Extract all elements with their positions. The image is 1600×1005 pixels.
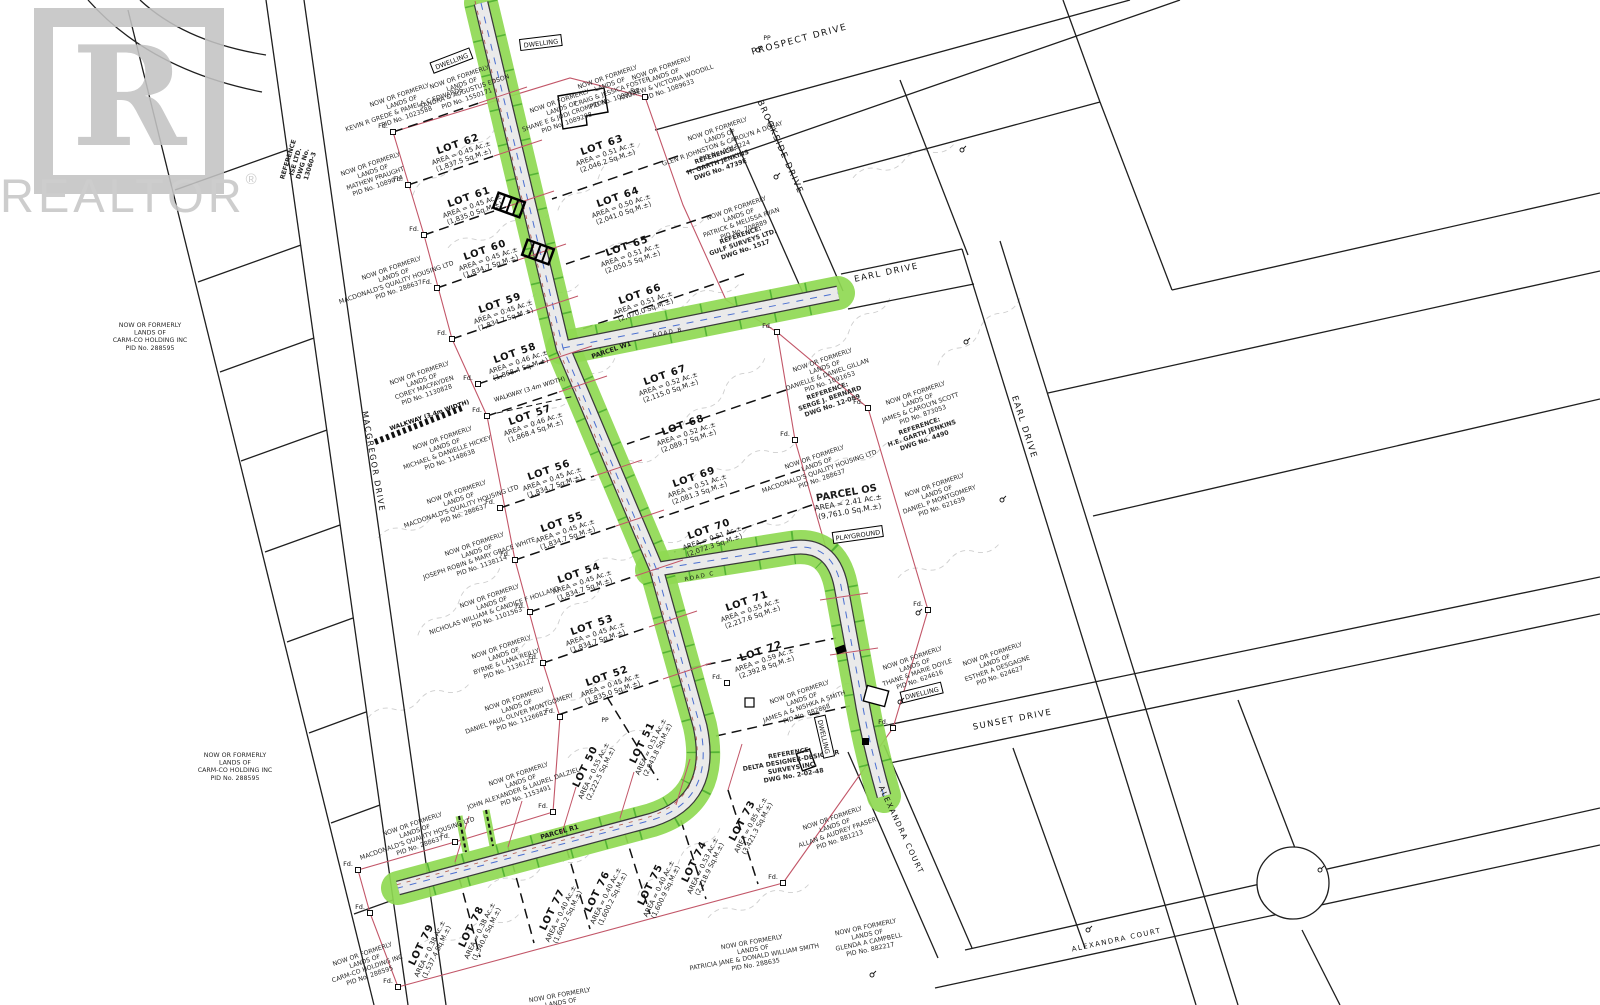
parcel-line [1013,748,1085,948]
svg-text:Fd.: Fd. [500,550,510,558]
svg-text:LANDS OF: LANDS OF [219,760,251,767]
lot-label-lot-52: LOT 52AREA = 0.45 Ac.±(1,835.0 Sq.M.±) [576,661,643,706]
svg-text:MACGREGOR DRIVE: MACGREGOR DRIVE [360,410,387,512]
lot-label-lot-77: LOT 77AREA = 0.40 Ac.±(1,600.2 Sq.M.±) [534,880,584,947]
svg-text:BROOKSIDE DRIVE: BROOKSIDE DRIVE [755,99,806,196]
owner-label: NOW OR FORMERLYLANDS OFCOREY MACFAYDENPI… [389,360,458,409]
found-monument-marker: Fd. [463,374,480,387]
svg-text:LANDS OF: LANDS OF [134,330,166,337]
parcel-line [198,245,301,282]
street-curve [140,0,266,55]
road-name-label: ALEXANDRA COURT [877,784,926,875]
svg-text:Fd.: Fd. [545,707,555,715]
lot-label-lot-55: LOT 55AREA = 0.45 Ac.±(1,834.7 Sq.M.±) [531,507,598,552]
found-monument-marker: Fd. [472,406,489,419]
lot-label-lot-72: LOT 72AREA = 0.59 Ac.±(2,392.8 Sq.M.±) [730,636,797,681]
found-monument-marker: Fd. [762,322,779,335]
parcel-line [220,338,314,372]
map-labels: PROSPECT DRIVEBROOKSIDE DRIVEEARL DRIVEE… [113,22,1324,1005]
contour-line [897,538,1002,582]
owner-label: NOW OR FORMERLYLANDS OFCARM-CO HOLDING I… [326,939,407,992]
owner-label: NOW OR FORMERLYLANDS OFMACDONALD'S QUALI… [333,246,457,314]
svg-text:CARM-CO HOLDING INC: CARM-CO HOLDING INC [198,767,273,774]
playground-label: PLAYGROUND [832,526,883,544]
owner-label: NOW OR FORMERLYLANDS OF [528,987,592,1005]
parcel-line [331,805,380,823]
svg-text:Fd.: Fd. [383,977,393,985]
survey-monument-icon [870,971,876,977]
svg-text:Fd.: Fd. [472,406,482,414]
survey-monument-icon [964,338,970,344]
svg-text:WALKWAY (3.4m WIDTH): WALKWAY (3.4m WIDTH) [493,375,566,403]
found-monument-marker: Fd. [383,977,400,990]
owner-label: NOW OR FORMERLYLANDS OFALLAN & AUDREY FR… [793,802,881,857]
owner-label: NOW OR FORMERLYLANDS OFDANIEL PAUL OLIVE… [460,678,578,743]
parcel-line [962,249,1196,1005]
parcel-line [900,80,968,255]
lot-label-lot-51: LOT 51AREA = 0.51 Ac.±(2,043.8 Sq.M.±) [624,713,674,780]
lot-label-lot-56: LOT 56AREA = 0.45 Ac.±(1,834.7 Sq.M.±) [518,455,585,500]
svg-text:NOW OR FORMERLY: NOW OR FORMERLY [204,752,267,759]
parcel-line [241,430,327,461]
owner-label: NOW OR FORMERLYLANDS OFESTHER A DESGAGNE… [959,640,1034,691]
svg-text:Fd.: Fd. [528,653,538,661]
svg-text:NOW OR FORMERLY: NOW OR FORMERLY [119,322,182,329]
svg-text:Fd.: Fd. [393,175,403,183]
lot-label-lot-68: LOT 68AREA = 0.52 Ac.±(2,089.7 Sq.M.±) [652,410,719,455]
owner-label: NOW OR FORMERLYLANDS OFPATRICIA JANE & D… [686,928,821,980]
survey-monument-icon [916,609,922,615]
svg-text:Fd.: Fd. [440,832,450,840]
parcel-line [1048,271,1600,393]
parcel-line [175,150,287,190]
svg-text:Fd.: Fd. [762,322,772,330]
lot-label-lot-78: LOT 78AREA = 0.38 Ac.±(1,540.6 Sq.M.±) [453,897,503,964]
lot-label-lot-71: LOT 71AREA = 0.55 Ac.±(2,217.6 Sq.M.±) [716,586,783,631]
road-name-label: SUNSET DRIVE [972,707,1053,732]
reference-label: REFERENCEISE LTD.DWG No.13060-3 [279,139,320,187]
parcel-line [655,0,1130,130]
survey-monument-icon [1086,926,1092,932]
lot-label-lot-67: LOT 67AREA = 0.52 Ac.±(2,115.0 Sq.M.±) [634,360,701,405]
svg-text:PID No. 288595: PID No. 288595 [126,345,175,352]
lot-label-lot-63: LOT 63AREA = 0.51 Ac.±(2,046.2 Sq.M.±) [571,130,638,175]
dwelling-label: DWELLING [520,35,563,51]
power-pole-label: PP [763,35,771,42]
found-monument-marker: Fd. [545,707,562,720]
parcel-line [309,712,366,733]
svg-text:Fd.: Fd. [378,122,388,130]
svg-text:Fd.: Fd. [780,430,790,438]
lot-label-lot-54: LOT 54AREA = 0.45 Ac.±(1,834.7 Sq.M.±) [548,558,615,603]
svg-text:SUNSET DRIVE: SUNSET DRIVE [972,707,1053,732]
found-monument-marker: Fd. [712,673,729,686]
lot-label-lot-60: LOT 60AREA = 0.45 Ac.±(1,834.7 Sq.M.±) [454,235,521,280]
lot-label-lot-53: LOT 53AREA = 0.45 Ac.±(1,834.7 Sq.M.±) [561,610,628,655]
found-monument-marker: Fd. [355,903,372,916]
road-name-label: BROOKSIDE DRIVE [755,99,806,196]
svg-text:PID No. 288595: PID No. 288595 [211,775,260,782]
red-lot-tick [728,744,742,790]
found-monument-marker: Fd. [768,873,785,886]
svg-text:Fd.: Fd. [712,673,722,681]
svg-text:Fd.: Fd. [355,903,365,911]
parcel-label: PARCEL OSAREA = 2.41 Ac.±(9,761.0 Sq.M.±… [812,482,884,521]
parcel-line [686,0,1180,172]
svg-text:Fd.: Fd. [515,602,525,610]
found-monument-marker: Fd. [437,329,454,342]
parcel-line [884,745,972,948]
svg-text:Fd.: Fd. [343,860,353,868]
owner-label: NOW OR FORMERLYLANDS OFMICHAEL & DANIELL… [398,420,495,478]
cul-de-sac-circle [1257,847,1329,919]
survey-square [745,698,754,707]
parcel-line [287,618,353,642]
lot-label-lot-73: LOT 73AREA = 0.85 Ac.±(3,421.3 Sq.M.±) [723,791,775,858]
owner-label: NOW OR FORMERLYLANDS OFANDREW & VICTORIA… [614,49,718,110]
svg-text:Fd.: Fd. [437,329,447,337]
svg-text:Fd.: Fd. [878,718,888,726]
svg-text:Fd.: Fd. [538,802,548,810]
lot-label-lot-59: LOT 59AREA = 0.45 Ac.±(1,834.7 Sq.M.±) [469,288,536,333]
plat-map-image: PROSPECT DRIVEBROOKSIDE DRIVEEARL DRIVEE… [0,0,1600,1005]
svg-text:Fd.: Fd. [853,398,863,406]
owner-label: NOW OR FORMERLYLANDS OFCARM-CO HOLDING I… [198,752,273,782]
lot-label-lot-58: LOT 58AREA = 0.46 Ac.±(1,868.4 Sq.M.±) [484,338,551,383]
owner-label: NOW OR FORMERLYLANDS OFCARM-CO HOLDING I… [113,322,188,352]
road-name-label: MACGREGOR DRIVE [360,410,387,512]
svg-text:ALEXANDRA COURT: ALEXANDRA COURT [877,784,926,875]
found-monument-marker: Fd. [343,860,360,873]
parcel-line [890,614,1600,763]
lot-label-lot-79: LOT 79AREA = 0.38 Ac.±(1,537.4 Sq.M.±) [403,915,453,982]
lot-label-lot-65: LOT 65AREA = 0.51 Ac.±(2,050.5 Sq.M.±) [596,231,663,276]
svg-text:Fd.: Fd. [630,87,640,95]
parcel-line [803,102,1100,182]
parcel-line [848,284,974,309]
building-block [862,738,869,745]
parcel-line [1302,930,1340,1005]
contour-line [367,678,472,722]
power-pole-label: PP [601,717,609,724]
owner-label: NOW OR FORMERLYLANDS OFDANIEL P MONTGOME… [897,470,980,523]
parcel-line [1093,399,1600,516]
svg-text:Fd.: Fd. [409,225,419,233]
parcel-line [1000,241,1238,1005]
walkway-label: WALKWAY (3.4m WIDTH) [493,375,566,403]
svg-text:Fd.: Fd. [485,498,495,506]
svg-text:Fd.: Fd. [422,278,432,286]
owner-label: NOW OR FORMERLYLANDS OFJOHN ALEXANDER & … [461,752,584,819]
lot-label-lot-57: LOT 57AREA = 0.46 Ac.±(1,868.4 Sq.M.±) [499,400,566,445]
lot-label-lot-64: LOT 64AREA = 0.50 Ac.±(2,041.0 Sq.M.±) [587,182,654,227]
parcel-line [1172,193,1600,290]
survey-monument-icon [774,173,780,179]
dwelling-label: DWELLING [430,48,473,73]
parcel-line [1238,700,1295,848]
found-monument-marker: Fd. [440,832,457,845]
dwelling-label: DWELLING [814,715,834,758]
parcel-line [1063,0,1100,102]
svg-text:Fd.: Fd. [768,873,778,881]
lot-label-lot-61: LOT 61AREA = 0.45 Ac.±(1,835.0 Sq.M.±) [438,182,505,227]
svg-text:CARM-CO HOLDING INC: CARM-CO HOLDING INC [113,337,188,344]
found-monument-marker: Fd. [853,398,870,411]
parcel-line [1100,102,1172,290]
survey-monument-icon [960,146,966,152]
lot-label-lot-74: LOT 74AREA = 0.53 Ac.±(2,118.9 Sq.M.±) [676,832,726,899]
parcel-line [265,525,340,552]
found-monument-marker: Fd. [409,225,426,238]
found-monument-marker: Fd. [913,600,930,613]
owner-label: NOW OR FORMERLYLANDS OFGLENDA A CAMPBELL… [832,917,905,960]
plat-map-svg: PROSPECT DRIVEBROOKSIDE DRIVEEARL DRIVEE… [0,0,1600,1005]
contour-line [707,878,812,922]
svg-text:Fd.: Fd. [913,600,923,608]
owner-label: NOW OR FORMERLYLANDS OFNICHOLAS WILLIAM … [424,571,563,644]
street-curve [88,0,262,92]
survey-monument-icon [1000,496,1006,502]
road-centerline [563,293,838,348]
svg-text:Fd.: Fd. [463,374,473,382]
